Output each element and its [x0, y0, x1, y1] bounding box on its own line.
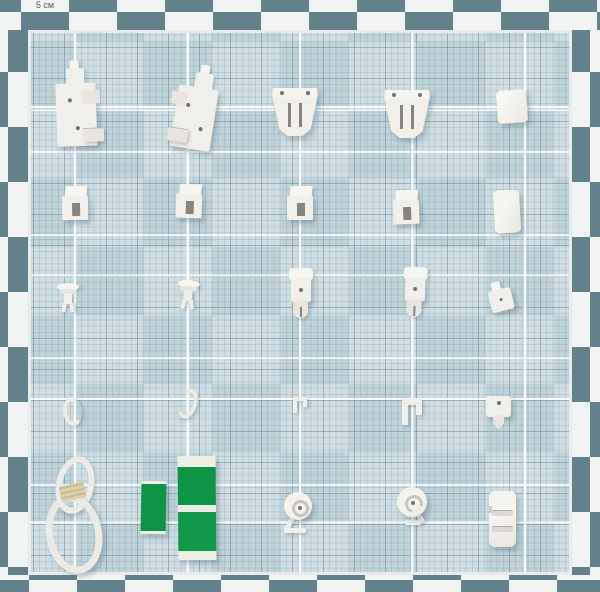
adhesive-strips-large	[178, 456, 217, 560]
tidy-center-dot	[411, 501, 415, 505]
guide-hole	[299, 288, 303, 292]
major-line-h	[31, 357, 569, 359]
guide-foot-slot	[300, 307, 302, 317]
slot	[299, 103, 302, 127]
square-clip	[392, 190, 421, 227]
square-clip	[287, 186, 315, 222]
slot	[411, 105, 414, 129]
screw-hole	[418, 93, 422, 97]
hook-hole	[497, 401, 501, 405]
clip-slot	[72, 203, 80, 216]
clip-slot	[186, 201, 194, 214]
rivet-leg	[189, 300, 194, 309]
plate-groove	[492, 510, 513, 516]
bracket-ledge	[83, 127, 104, 142]
cord-tidy-a	[283, 492, 315, 537]
scale-label: 5 см	[21, 0, 69, 12]
clip-slot	[403, 207, 411, 220]
cord-guide	[288, 268, 314, 320]
hook-base-plate	[486, 396, 511, 417]
tidy-foot	[284, 528, 306, 533]
clip-hook	[303, 400, 307, 407]
tidy-foot	[405, 520, 421, 525]
square-clip	[175, 184, 204, 221]
push-rivet	[175, 279, 203, 313]
rivet-leg	[61, 303, 66, 313]
adhesive-strip-small	[141, 481, 167, 534]
tidy-center-dot	[298, 506, 302, 510]
spacer-block	[493, 189, 521, 233]
bracket-ledge	[166, 126, 188, 143]
screw-hole	[280, 91, 284, 95]
push-rivet	[56, 283, 82, 315]
checker-border-left	[0, 0, 28, 592]
major-line-h	[31, 234, 569, 236]
mounting-plate	[489, 491, 516, 547]
end-cap	[496, 89, 528, 124]
mini-clip-a	[293, 397, 310, 415]
cord-tidy-b	[395, 487, 429, 531]
clip-leg	[293, 400, 297, 413]
slot	[400, 105, 403, 129]
clip-hook	[416, 404, 422, 415]
checker-border-right	[572, 0, 600, 592]
hook-tab	[493, 415, 504, 430]
square-clip	[62, 186, 91, 222]
plate-notch	[489, 506, 492, 513]
plate-groove	[492, 526, 513, 532]
cassette-bracket-a	[272, 88, 318, 136]
cord-guide	[401, 267, 429, 320]
screw-hole	[306, 91, 310, 95]
slot	[288, 103, 291, 127]
screw-hole	[392, 93, 396, 97]
clip-slot	[297, 203, 305, 216]
checker-border-top	[0, 0, 600, 30]
major-line-h	[31, 484, 569, 486]
mini-clip-b	[402, 399, 426, 426]
cord-loop	[44, 454, 104, 564]
clip-leg	[402, 404, 408, 425]
adhesive-hook	[486, 396, 511, 432]
calibration-board: 5 см	[0, 0, 600, 592]
rivet-leg	[180, 299, 186, 309]
checker-border-bottom	[0, 575, 600, 592]
guide-foot-slot	[413, 306, 415, 316]
cassette-bracket-b	[384, 90, 430, 138]
bracket-step	[82, 89, 100, 104]
rivet-leg	[69, 303, 74, 313]
wall-bracket-left	[55, 59, 108, 147]
